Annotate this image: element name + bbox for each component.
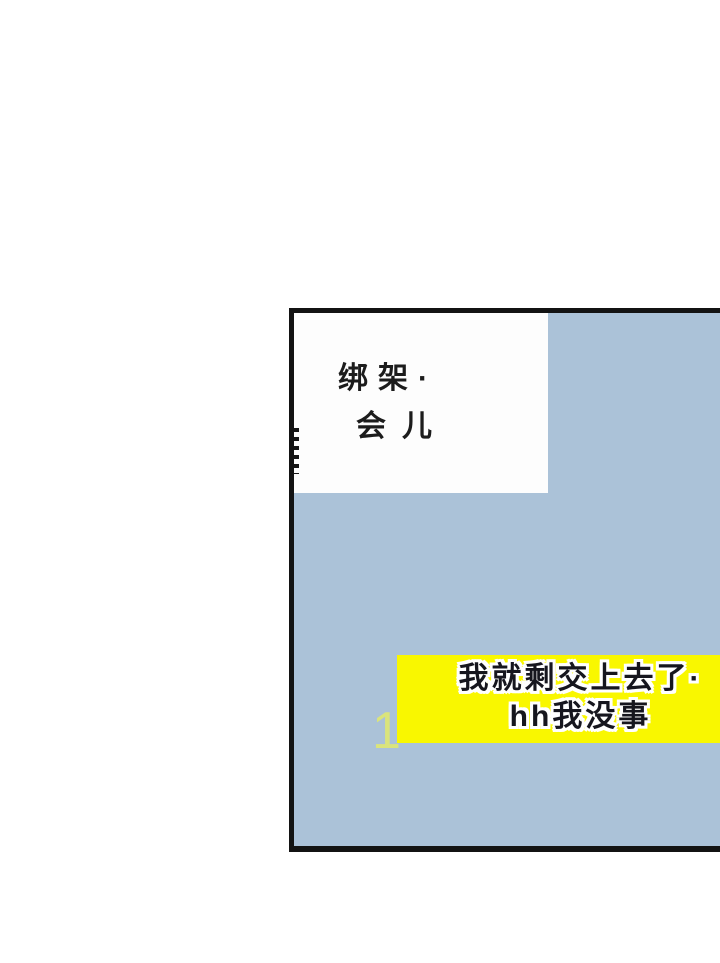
speech-line-1: 绑架· [338,353,438,397]
caption-line-2: hh我没事 [441,698,720,736]
hatch-marks-decoration [294,428,299,474]
caption-banner: 我就剩交上去了· hh我没事 [397,655,720,743]
comic-page: 绑架· 会儿 1 我就剩交上去了· hh我没事 [0,0,720,963]
speech-bubble: 绑架· 会儿 [294,313,548,493]
speech-line-2: 会儿 [356,401,448,445]
caption-line-1: 我就剩交上去了· [441,660,720,698]
comic-panel: 绑架· 会儿 1 我就剩交上去了· hh我没事 [289,308,720,852]
